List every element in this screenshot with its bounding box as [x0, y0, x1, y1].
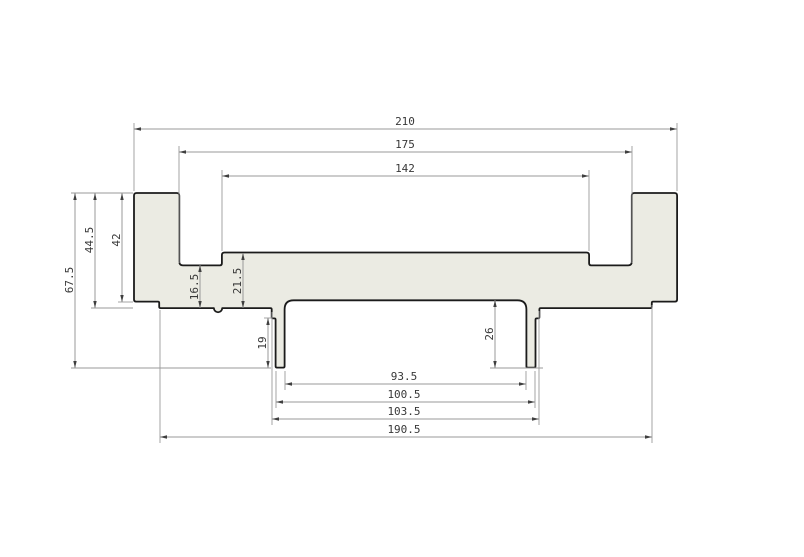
dimension-label: 67.5 [63, 267, 76, 294]
profile-outline [134, 193, 677, 368]
dimension-93.5: 93.5 [285, 370, 526, 390]
dimension-label: 16.5 [188, 274, 201, 301]
dimension-label: 44.5 [83, 227, 96, 254]
dimension-44.5: 44.5 [83, 193, 133, 308]
dimension-label: 210 [395, 115, 415, 128]
dimension-label: 19 [256, 336, 269, 349]
dimension-42: 42 [110, 193, 133, 302]
drawing-sheet: 21017514293.5100.5103.5190.567.544.54216… [0, 0, 804, 557]
technical-drawing: 21017514293.5100.5103.5190.567.544.54216… [0, 0, 804, 557]
dimension-label: 190.5 [387, 423, 420, 436]
dimension-label: 142 [395, 162, 415, 175]
dimension-210: 210 [134, 115, 677, 191]
dimension-142: 142 [222, 162, 589, 251]
dimension-label: 100.5 [387, 388, 420, 401]
dimension-19: 19 [256, 318, 272, 368]
dimension-label: 103.5 [387, 405, 420, 418]
dimension-label: 93.5 [391, 370, 418, 383]
dimension-label: 26 [483, 327, 496, 340]
dimension-label: 175 [395, 138, 415, 151]
dimension-label: 21.5 [231, 268, 244, 295]
dimension-175: 175 [179, 138, 632, 263]
dimension-label: 42 [110, 233, 123, 246]
